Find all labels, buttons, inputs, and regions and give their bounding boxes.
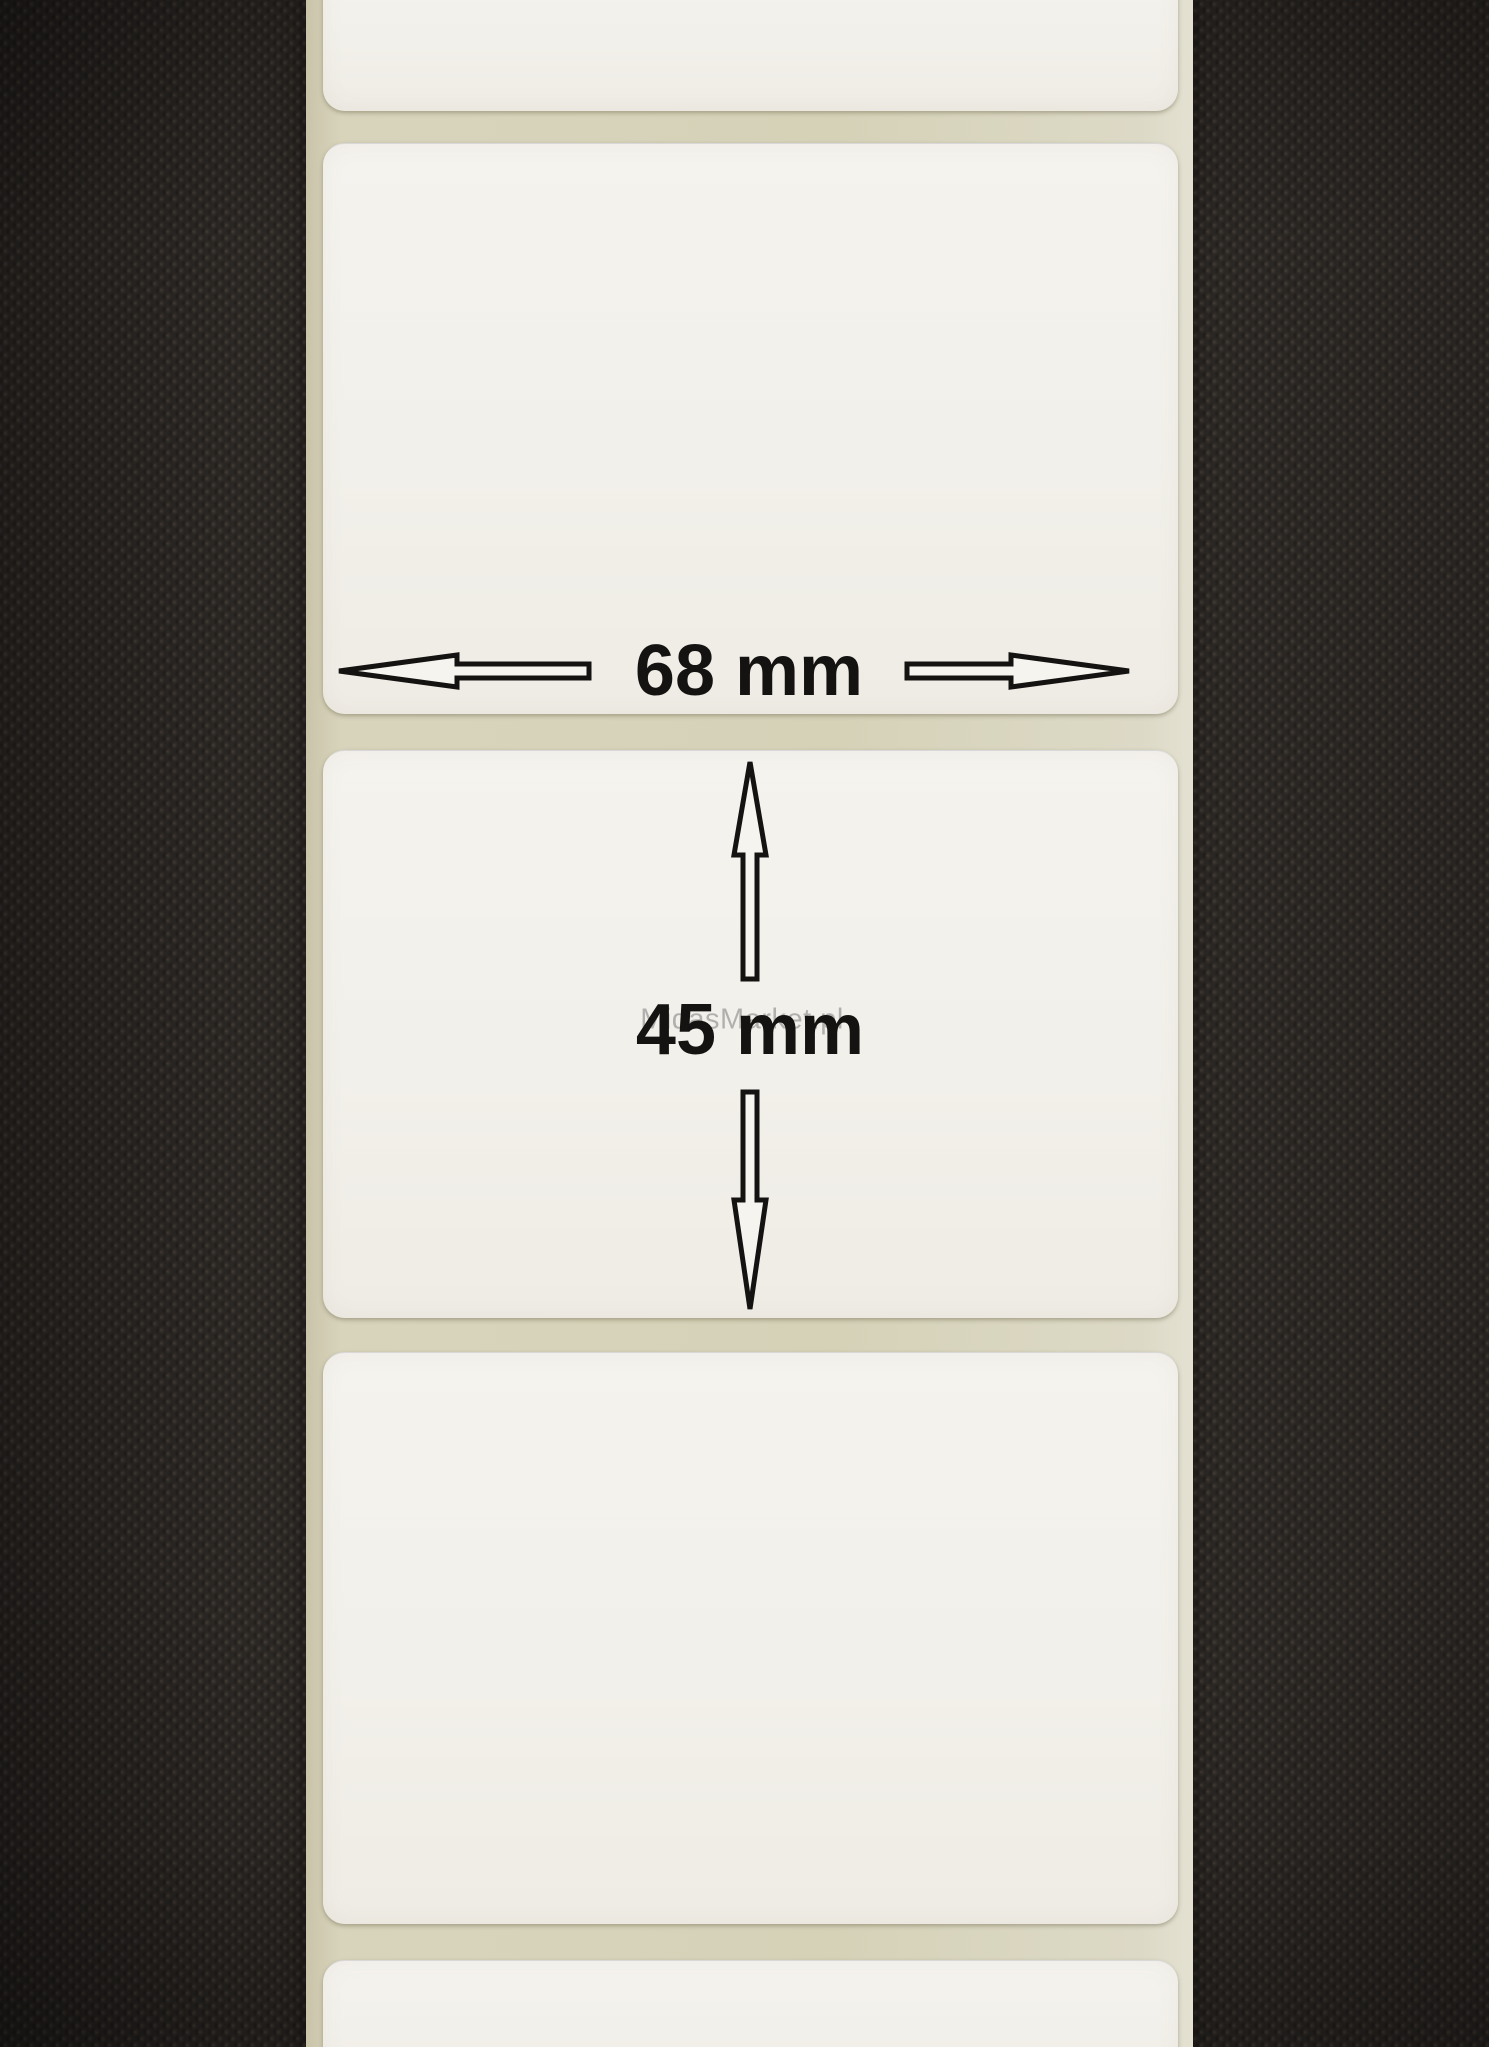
width-arrow-right-icon xyxy=(903,652,1133,690)
width-dimension-label: 68 mm xyxy=(635,630,863,712)
label-sticker-top-partial xyxy=(323,0,1178,111)
height-dimension-label: 45 mm xyxy=(636,989,864,1071)
width-arrow-left-icon xyxy=(335,652,593,690)
label-sticker-bottom-partial xyxy=(323,1960,1178,2047)
label-sticker-blank xyxy=(323,1352,1178,1924)
height-arrow-down-icon xyxy=(731,1088,769,1313)
product-photo: 68 mm MidasMarket.pl 45 mm xyxy=(0,0,1489,2047)
label-sticker-width-annotated xyxy=(323,143,1178,714)
height-arrow-up-icon xyxy=(731,758,769,983)
